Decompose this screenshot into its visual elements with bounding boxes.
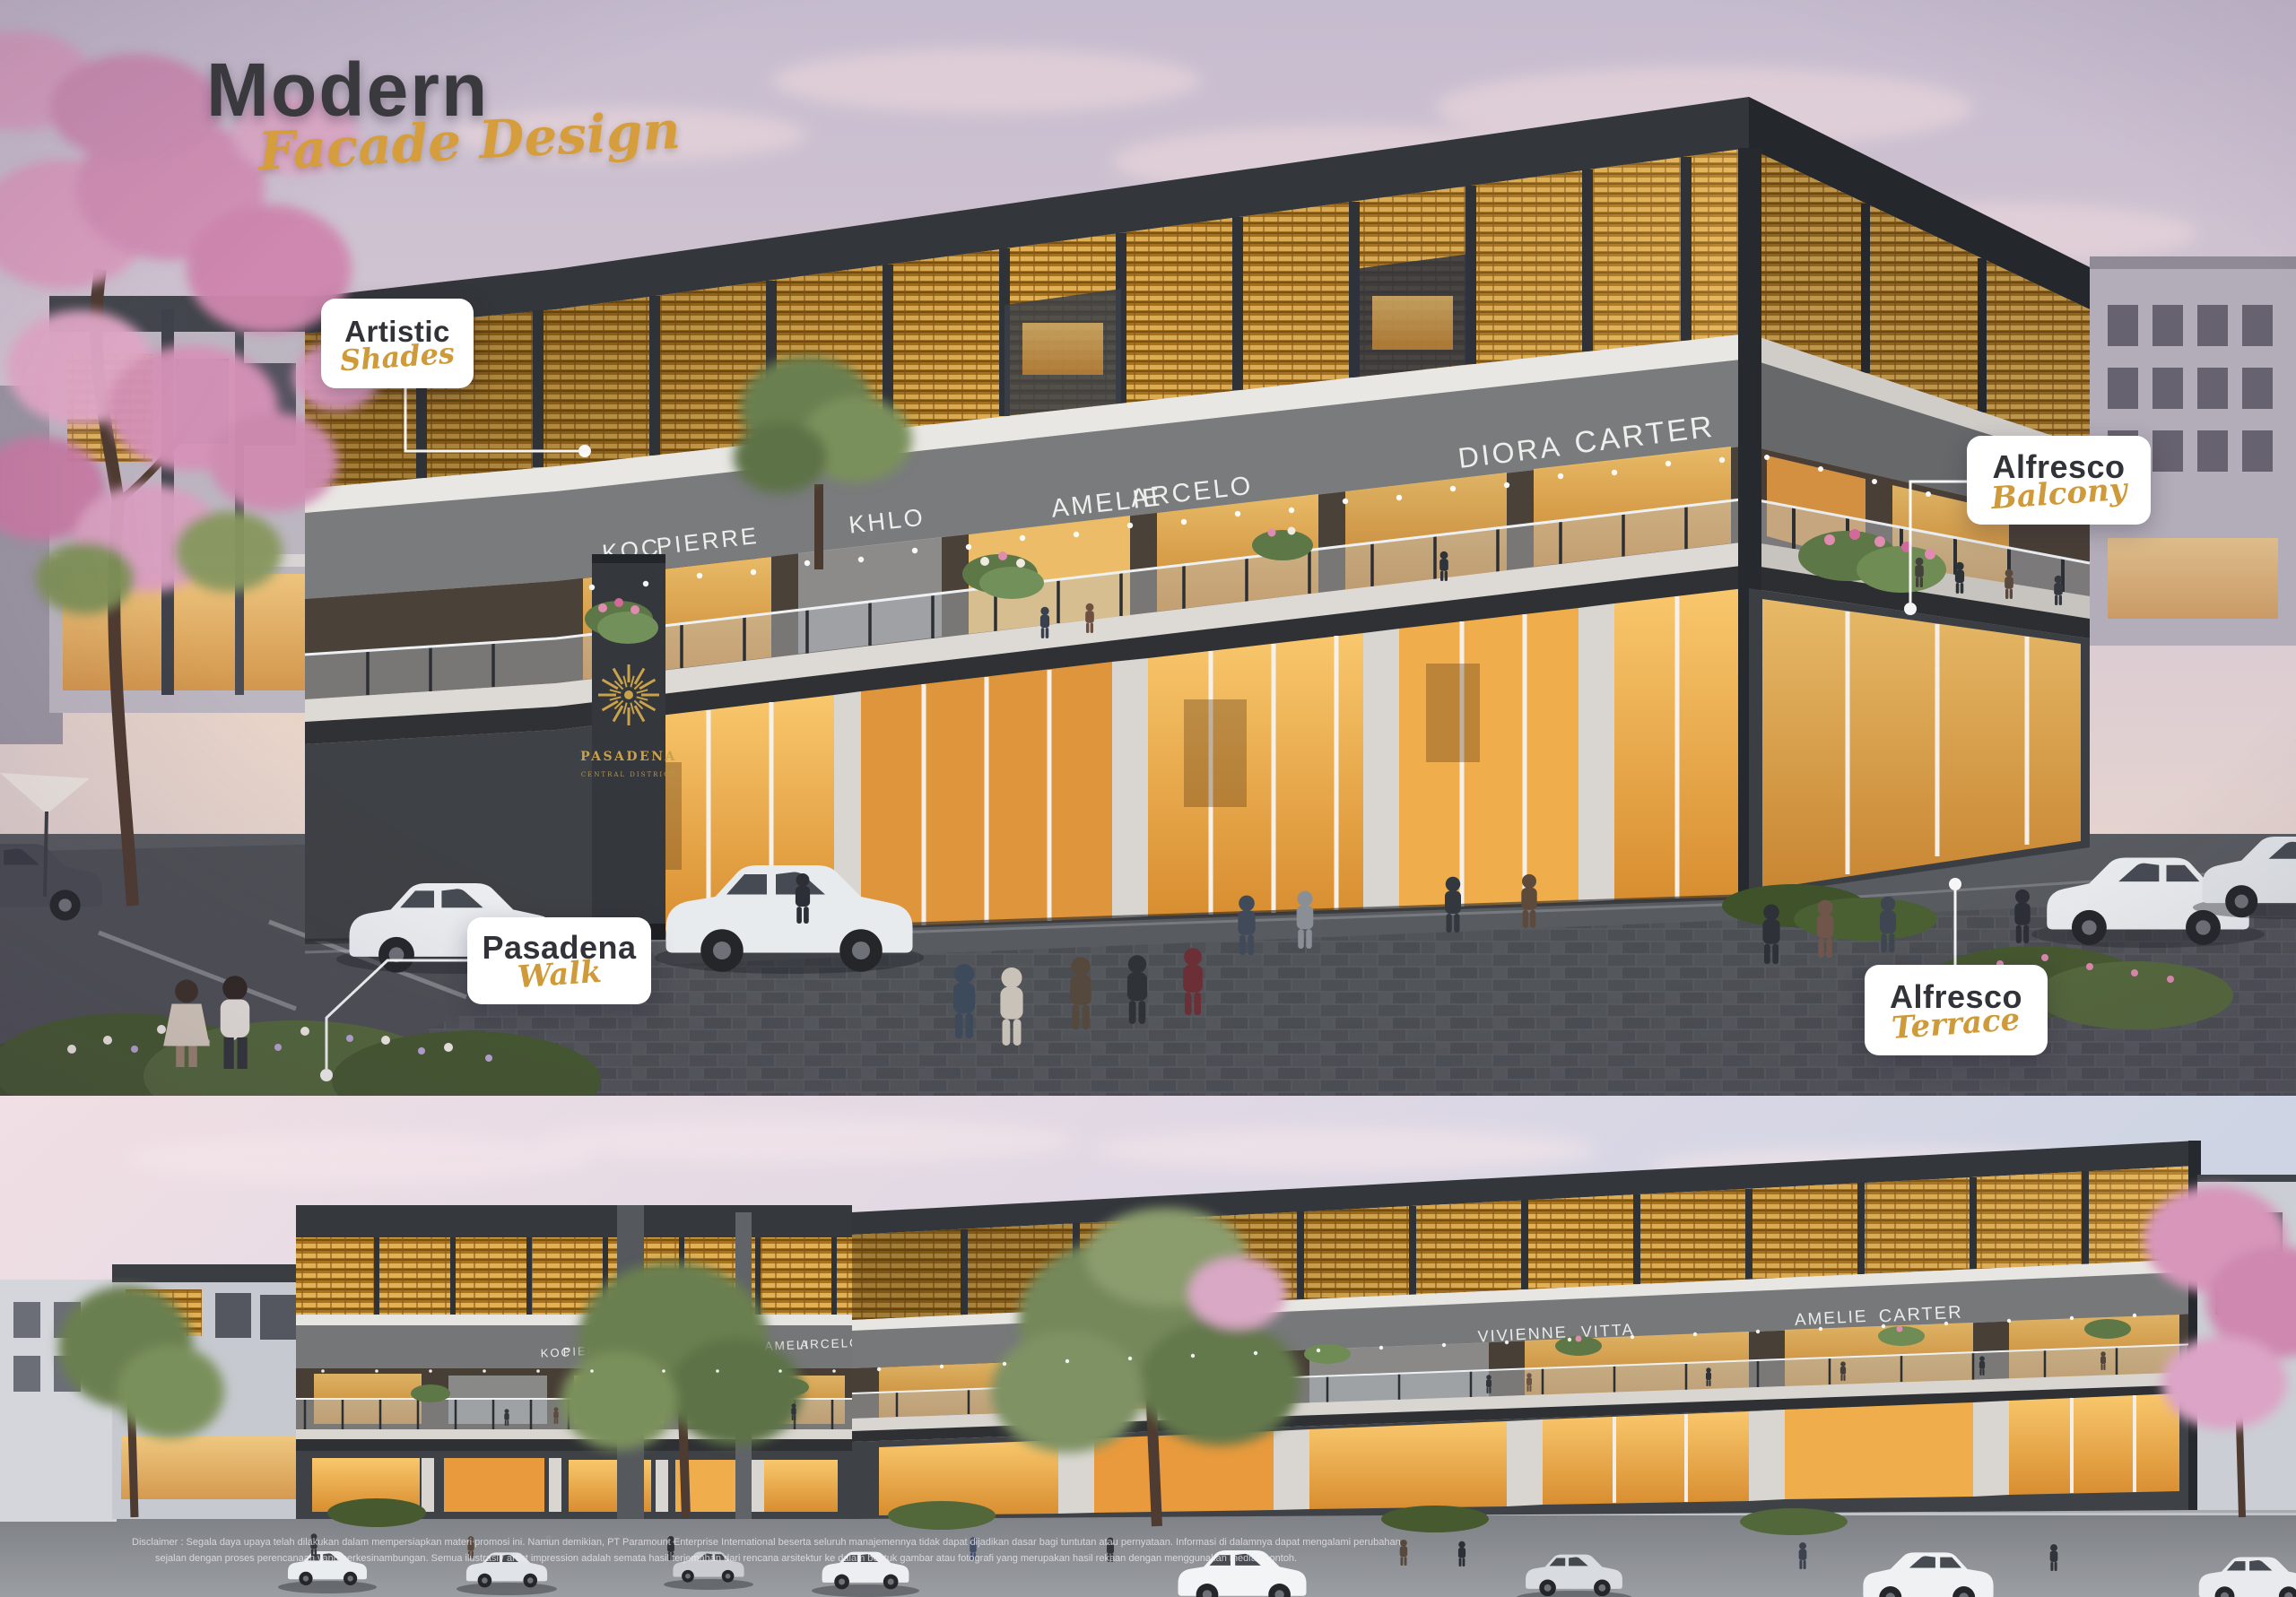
sign-arcelo-b: ARCELO — [800, 1336, 861, 1351]
disclaimer-line1: Disclaimer : Segala daya upaya telah dil… — [132, 1537, 1401, 1548]
callout-script-label: Walk — [517, 957, 603, 993]
sign-amelie-b: AMELIE — [1794, 1307, 1868, 1330]
callout-pasadena-walk: Pasadena Walk — [467, 917, 651, 1004]
callout-script-label: Shades — [339, 338, 456, 375]
callout-artistic-shades: Artistic Shades — [321, 299, 474, 388]
callout-alfresco-balcony: Alfresco Balcony — [1967, 436, 2151, 525]
disclaimer-line2: sejalan dengan proses perencanaan yang b… — [155, 1553, 1297, 1564]
callout-alfresco-terrace: Alfresco Terrace — [1865, 965, 2048, 1055]
facade-design-poster: KOC PIERRE KHLO AMELIE ARCELO DIORA CART… — [0, 0, 2296, 1597]
street-elevation-panel: KOC PIERRE KHLO AMELI ARCELO — [0, 1096, 2296, 1597]
page-title: Modern Facade Design — [206, 52, 681, 167]
callout-script-label: Terrace — [1891, 1004, 2021, 1044]
callout-script-label: Balcony — [1990, 474, 2128, 514]
street-scene: KOC PIERRE KHLO AMELI ARCELO — [0, 1096, 2296, 1597]
